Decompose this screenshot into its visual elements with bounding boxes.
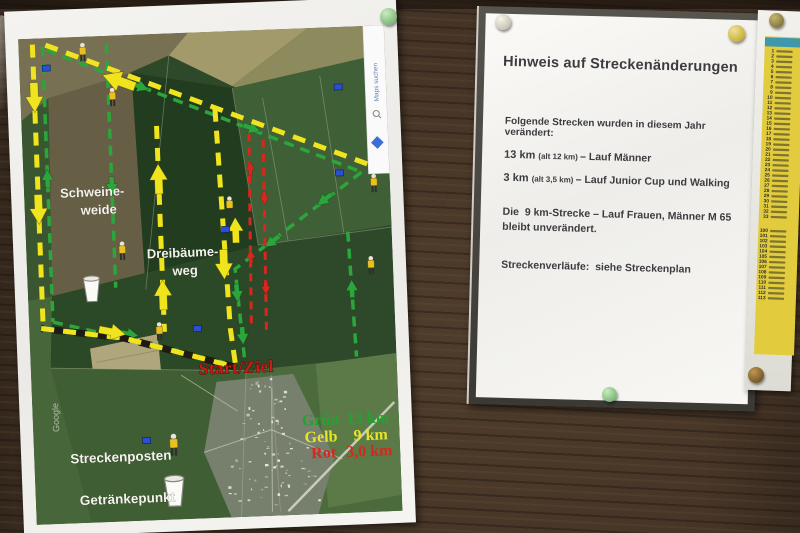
- start-list-name-smudge: [771, 211, 787, 213]
- start-list-name-smudge: [771, 195, 787, 197]
- start-list-name-smudge: [775, 81, 791, 83]
- maps-search-label: Maps suchen: [372, 62, 380, 101]
- start-list-name-smudge: [775, 102, 791, 104]
- pushpin-olive: [769, 13, 784, 28]
- start-list-name-smudge: [772, 175, 788, 177]
- start-list-name-smudge: [774, 107, 790, 109]
- pushpin-bronze: [748, 367, 764, 383]
- start-list-name-smudge: [772, 180, 788, 182]
- start-list-name-smudge: [773, 133, 789, 135]
- start-list-name-smudge: [776, 61, 792, 63]
- notice-change-13km: 13 km (alt 12 km) – Lauf Männer: [504, 149, 740, 167]
- start-list-name-smudge: [770, 230, 786, 232]
- start-list-name-smudge: [773, 159, 789, 161]
- notice-footer: Streckenverläufe: siehe Streckenplan: [501, 259, 737, 277]
- notice-change-3km: 3 km (alt 3,5 km) – Lauf Junior Cup und …: [503, 172, 739, 190]
- start-list-name-smudge: [768, 287, 784, 289]
- start-list-name-smudge: [776, 50, 792, 52]
- start-list-name-smudge: [775, 76, 791, 78]
- notice-intro: Folgende Strecken wurden in diesem Jahr …: [505, 116, 741, 144]
- start-list-name-smudge: [773, 144, 789, 146]
- start-list-name-smudge: [776, 56, 792, 58]
- label-start-ziel: Start/Ziel: [199, 357, 275, 379]
- start-list-name-smudge: [769, 266, 785, 268]
- pushpin-green: [380, 8, 397, 25]
- start-list-name-smudge: [769, 271, 785, 273]
- pushpin-yellow: [728, 25, 745, 42]
- notice-sleeve: Hinweis auf Streckenänderungen Folgende …: [467, 6, 765, 411]
- start-list-name-smudge: [776, 66, 792, 68]
- start-list-name-smudge: [769, 251, 785, 253]
- start-list-name-smudge: [773, 154, 789, 156]
- start-list-header-bar: [765, 37, 800, 47]
- aerial-route-map: Maps suchen: [18, 25, 402, 525]
- start-list-name-smudge: [773, 138, 789, 140]
- start-list-name-smudge: [772, 185, 788, 187]
- route-map-poster: Maps suchen: [4, 0, 416, 533]
- notice-title: Hinweis auf Streckenänderungen: [484, 53, 756, 76]
- start-list-name-smudge: [770, 235, 786, 237]
- start-list-block-2: 1001011021031041051061071081091101111121…: [756, 228, 798, 302]
- start-list-block-1: 1234567891011121314151617181920212223242…: [759, 48, 800, 220]
- start-list-name-smudge: [770, 240, 786, 242]
- start-list-name-smudge: [774, 128, 790, 130]
- start-list-name-smudge: [771, 190, 787, 192]
- map-fields: [18, 25, 402, 525]
- start-list-row: 113: [756, 295, 796, 302]
- start-list-name-smudge: [768, 292, 784, 294]
- start-list-name-smudge: [774, 118, 790, 120]
- photo-of-notice-board: Maps suchen: [0, 0, 800, 533]
- notice-paper: Hinweis auf Streckenänderungen Folgende …: [476, 13, 758, 404]
- start-list-name-smudge: [768, 297, 784, 299]
- start-list-name-smudge: [770, 246, 786, 248]
- start-list-name-smudge: [768, 282, 784, 284]
- start-list-name-smudge: [775, 87, 791, 89]
- start-list-name-smudge: [773, 149, 789, 151]
- start-list-name-smudge: [768, 277, 784, 279]
- start-list-paper: 1234567891011121314151617181920212223242…: [754, 36, 800, 355]
- start-list-name-smudge: [769, 256, 785, 258]
- start-list-name-smudge: [772, 169, 788, 171]
- start-list-name-smudge: [775, 92, 791, 94]
- google-watermark: Google: [50, 403, 61, 432]
- start-list-name-smudge: [772, 164, 788, 166]
- start-list-name-smudge: [775, 97, 791, 99]
- legend-red-row: Rot 3,0 km: [311, 442, 393, 462]
- pushpin-green: [602, 387, 617, 402]
- pushpin-white: [495, 14, 511, 30]
- notice-unchanged: Die 9 km-Strecke – Lauf Frauen, Männer M…: [502, 205, 739, 241]
- start-list-name-smudge: [771, 216, 787, 218]
- start-list-name-smudge: [771, 200, 787, 202]
- start-list-name-smudge: [776, 71, 792, 73]
- start-list-name-smudge: [774, 112, 790, 114]
- start-list-name-smudge: [774, 123, 790, 125]
- start-list-name-smudge: [771, 206, 787, 208]
- start-list-name-smudge: [769, 261, 785, 263]
